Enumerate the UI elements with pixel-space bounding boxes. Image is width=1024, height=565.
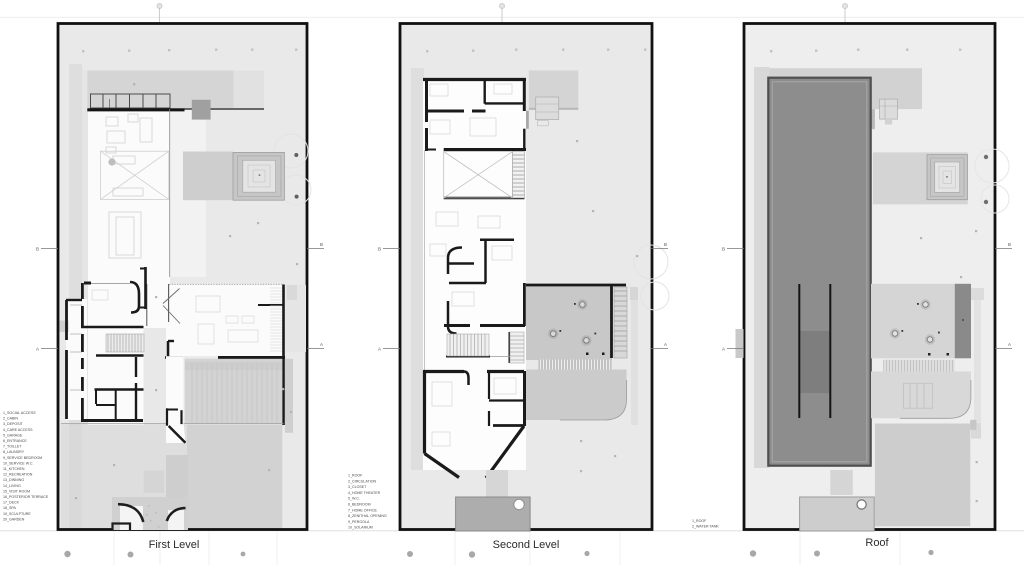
svg-text:10_SERVICE W.C.: 10_SERVICE W.C. — [3, 461, 34, 465]
svg-text:B: B — [378, 247, 381, 252]
svg-text:6_BEDROOM: 6_BEDROOM — [348, 503, 371, 507]
svg-text:B: B — [664, 242, 667, 247]
svg-text:2_WATER TANK: 2_WATER TANK — [692, 525, 719, 529]
svg-text:10_SOLARIUM: 10_SOLARIUM — [348, 526, 373, 530]
svg-text:3_DEPOSIT: 3_DEPOSIT — [3, 422, 24, 426]
svg-text:7_TOILLET: 7_TOILLET — [3, 445, 22, 449]
svg-text:A: A — [1008, 342, 1011, 347]
svg-text:A: A — [36, 347, 39, 352]
svg-text:B: B — [320, 242, 323, 247]
svg-text:12_RECREATION: 12_RECREATION — [3, 473, 33, 477]
svg-text:8_LAUNDRY: 8_LAUNDRY — [3, 450, 25, 454]
svg-text:2_CABIN: 2_CABIN — [3, 417, 18, 421]
svg-text:A: A — [722, 347, 725, 352]
svg-text:A: A — [378, 347, 381, 352]
svg-text:A: A — [664, 342, 667, 347]
svg-text:9_PERGOLA: 9_PERGOLA — [348, 520, 370, 524]
svg-text:4_HOME THEATER: 4_HOME THEATER — [348, 491, 381, 495]
svg-text:8_ZENITHAL OPENING: 8_ZENITHAL OPENING — [348, 514, 387, 518]
svg-text:4_CARE ACCESS: 4_CARE ACCESS — [3, 428, 33, 432]
svg-text:A: A — [320, 342, 323, 347]
svg-text:17_DECK: 17_DECK — [3, 501, 20, 505]
svg-text:9_SERVICE BEDROOM: 9_SERVICE BEDROOM — [3, 456, 42, 460]
svg-text:6_ENTRANCE: 6_ENTRANCE — [3, 439, 27, 443]
svg-text:First Level: First Level — [149, 539, 200, 551]
svg-text:19_SCULPTURE: 19_SCULPTURE — [3, 512, 31, 516]
svg-text:13_DINNING: 13_DINNING — [3, 478, 24, 482]
svg-text:20_GARDEN: 20_GARDEN — [3, 517, 25, 521]
svg-text:1_ROOF: 1_ROOF — [348, 474, 363, 478]
svg-text:14_LIVING: 14_LIVING — [3, 484, 21, 488]
svg-text:B: B — [722, 247, 725, 252]
svg-text:2_CIRCULATION: 2_CIRCULATION — [348, 479, 376, 483]
svg-text:5_W.C.: 5_W.C. — [348, 497, 360, 501]
svg-text:5_GARAGE: 5_GARAGE — [3, 433, 23, 437]
svg-text:1_SOCIAL ACCESS: 1_SOCIAL ACCESS — [3, 411, 36, 415]
svg-text:15_VISIT ROOM: 15_VISIT ROOM — [3, 489, 30, 493]
svg-text:Roof: Roof — [865, 537, 889, 549]
svg-text:3_CLOSET: 3_CLOSET — [348, 485, 367, 489]
svg-text:1_ROOF: 1_ROOF — [692, 519, 707, 523]
svg-text:B: B — [36, 247, 39, 252]
svg-text:18_SPA: 18_SPA — [3, 506, 17, 510]
svg-text:Second Level: Second Level — [493, 539, 560, 551]
svg-text:B: B — [1008, 242, 1011, 247]
svg-text:11_KITCHEN: 11_KITCHEN — [3, 467, 25, 471]
svg-text:7_HOME OFFICE: 7_HOME OFFICE — [348, 508, 378, 512]
svg-text:16_POSTERIOR TERRACE: 16_POSTERIOR TERRACE — [3, 495, 49, 499]
